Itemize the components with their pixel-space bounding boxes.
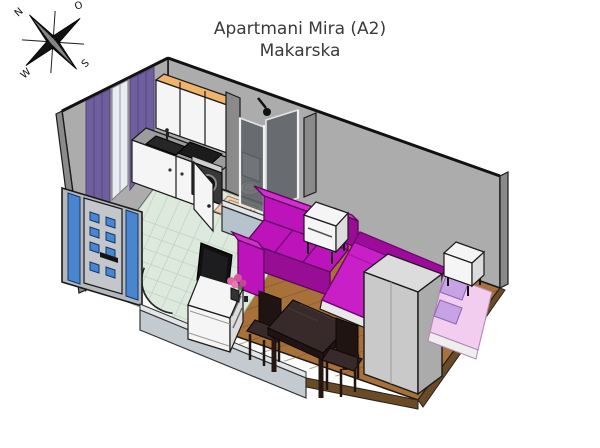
shower-head	[263, 108, 271, 116]
floorplan-canvas: Apartmani Mira (A2) Makarska N O S W	[0, 0, 600, 448]
compass-rose: N O S W	[2, 0, 104, 93]
door-sidelight-left	[68, 193, 80, 284]
title-line1: Apartmani Mira (A2)	[214, 19, 386, 39]
bathroom-wall-right	[304, 113, 316, 197]
shower-glass-left	[240, 118, 264, 213]
vase	[231, 288, 239, 302]
bathroom-door-handle	[207, 204, 211, 208]
page-title: Apartmani Mira (A2) Makarska	[214, 19, 386, 61]
compass-label-east: O	[73, 0, 84, 13]
compass-label-south: S	[80, 58, 92, 70]
door-sidelight-right	[126, 210, 138, 300]
right-wall-end	[500, 172, 508, 288]
floorplan-page: Apartmani Mira (A2) Makarska N O S W	[0, 0, 600, 448]
sofa-foot	[244, 296, 248, 302]
compass-label-north: N	[13, 6, 26, 19]
title-line2: Makarska	[260, 41, 341, 61]
bathroom-wall-left	[226, 92, 240, 196]
wardrobe	[364, 254, 442, 394]
compass-label-west: W	[19, 66, 34, 81]
